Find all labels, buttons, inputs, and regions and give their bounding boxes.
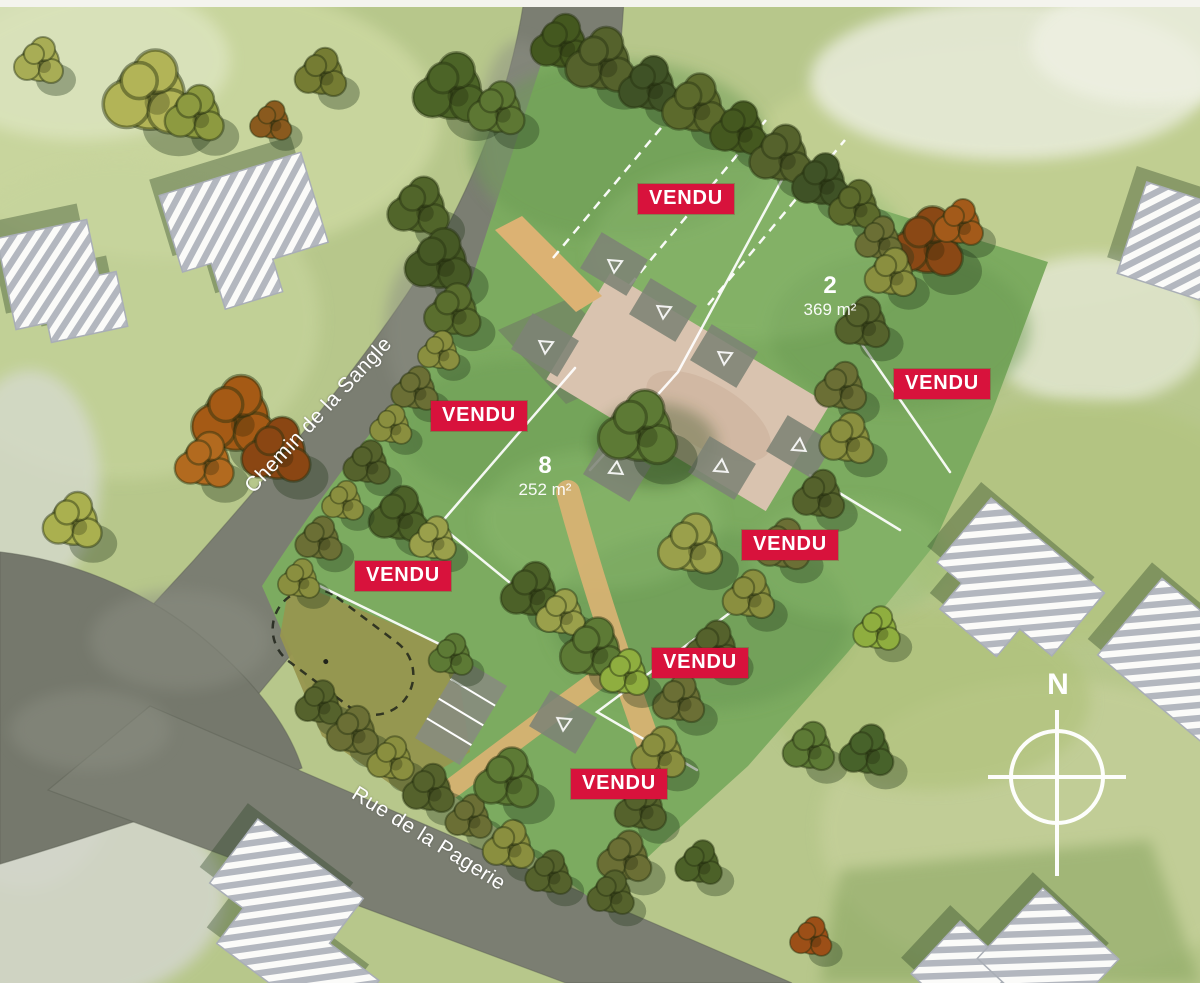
site-plan-illustration — [0, 0, 1200, 983]
site-plan: Chemin de la Sangle Rue de la Pagerie 2 … — [0, 0, 1200, 983]
paper-edge — [0, 0, 1200, 7]
